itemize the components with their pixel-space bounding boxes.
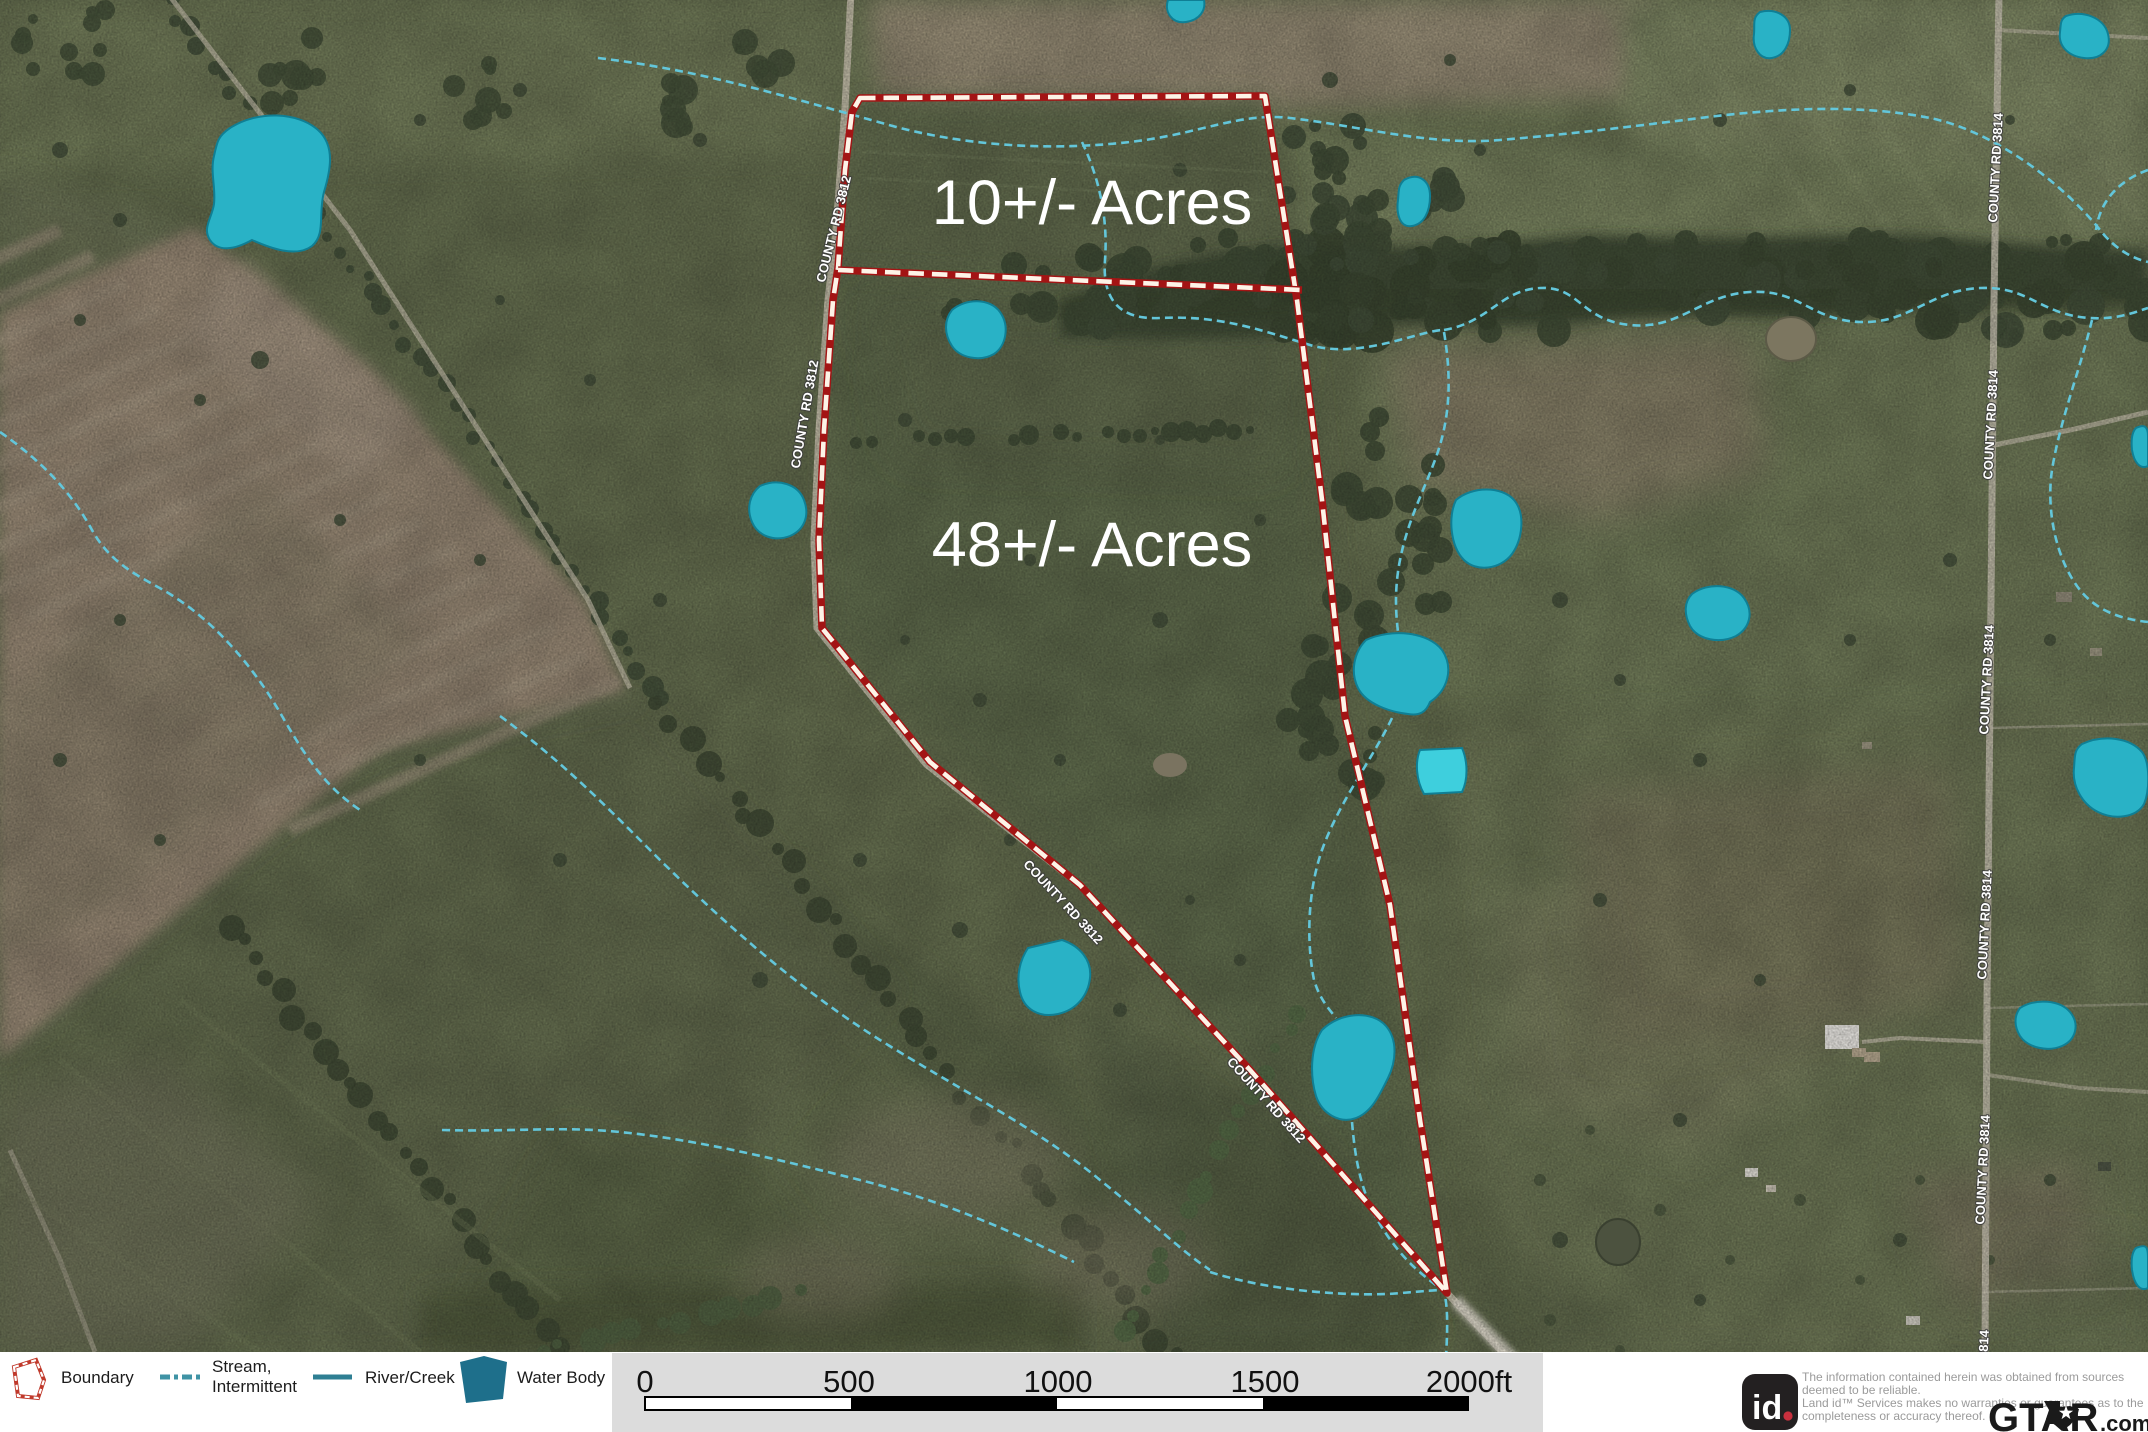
svg-text:Water Body: Water Body bbox=[517, 1368, 606, 1387]
svg-text:id: id bbox=[1752, 1389, 1782, 1427]
svg-text:10+/- Acres: 10+/- Acres bbox=[932, 168, 1252, 238]
svg-text:48+/- Acres: 48+/- Acres bbox=[932, 510, 1252, 580]
svg-text:500: 500 bbox=[823, 1364, 875, 1399]
svg-text:The information contained here: The information contained herein was obt… bbox=[1802, 1370, 2124, 1384]
svg-text:River/Creek: River/Creek bbox=[365, 1368, 455, 1387]
svg-text:Boundary: Boundary bbox=[61, 1368, 134, 1387]
svg-text:deemed to be reliable.: deemed to be reliable. bbox=[1802, 1383, 1921, 1397]
svg-text:0: 0 bbox=[636, 1364, 653, 1399]
svg-text:GTAR: GTAR bbox=[1988, 1396, 2098, 1432]
svg-text:1000: 1000 bbox=[1024, 1364, 1093, 1399]
svg-text:.com: .com bbox=[2100, 1411, 2148, 1432]
svg-text:2000ft: 2000ft bbox=[1426, 1364, 1513, 1399]
svg-text:completeness or accuracy there: completeness or accuracy thereof. bbox=[1802, 1409, 1985, 1423]
svg-text:Stream,: Stream, bbox=[212, 1357, 272, 1376]
svg-text:Intermittent: Intermittent bbox=[212, 1377, 297, 1396]
svg-text:1500: 1500 bbox=[1231, 1364, 1300, 1399]
